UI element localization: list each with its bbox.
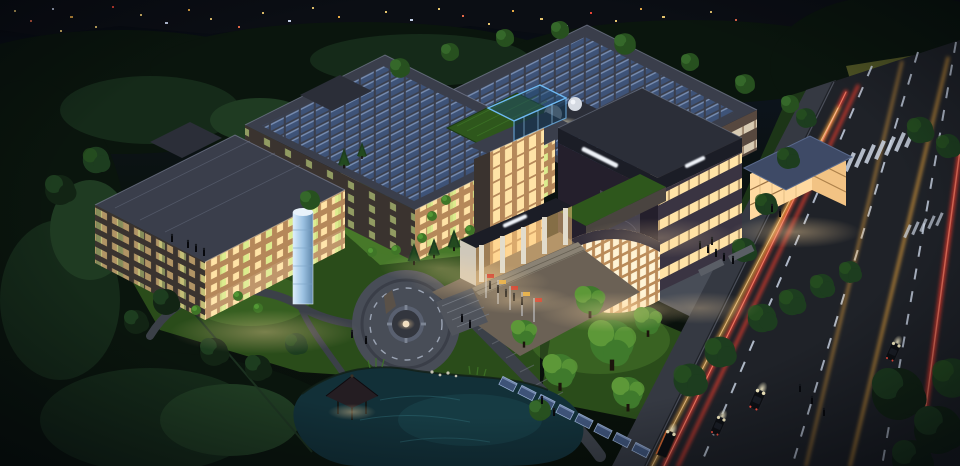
rendering-canvas: [0, 0, 960, 466]
vignette-overlay: [0, 0, 960, 466]
night-campus-rendering: [0, 0, 960, 466]
